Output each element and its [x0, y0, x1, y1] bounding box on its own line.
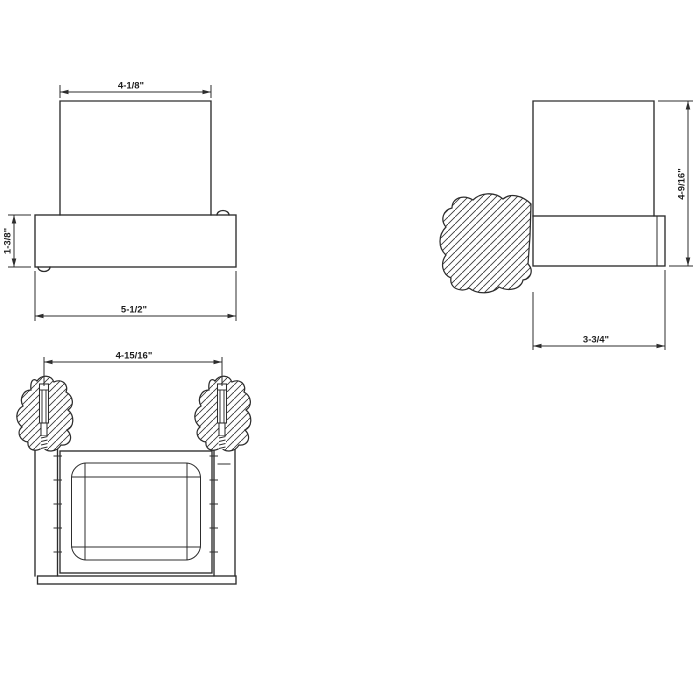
mount-base-front-outline	[35, 215, 236, 267]
anchor-screw-icon	[40, 384, 49, 449]
dim-arrow	[12, 259, 17, 268]
dim-label-base-height: 1-3/8"	[3, 228, 14, 254]
dim-label-top-width: 4-1/8"	[118, 81, 144, 92]
dim-arrow	[12, 215, 17, 224]
front-dimensions: 4-1/8" 1-3/8" 5-1/2"	[3, 81, 237, 322]
drawing-canvas: 4-1/8" 1-3/8" 5-1/2"	[0, 0, 700, 700]
dim-label-base-width: 5-1/2"	[121, 305, 147, 316]
technical-drawing: 4-1/8" 1-3/8" 5-1/2"	[0, 0, 700, 700]
set-screw-bump-top-icon	[217, 211, 229, 216]
holder-top-outline	[35, 447, 236, 584]
tumbler-side-outline	[533, 101, 654, 216]
ring-outer-edge	[60, 451, 212, 573]
mount-base-side-outline	[533, 216, 665, 266]
glass-rim-outline	[72, 463, 201, 560]
dim-arrow	[214, 360, 223, 365]
dim-arrow	[686, 101, 691, 110]
dim-label-overall-height: 4-9/16"	[677, 168, 688, 199]
dim-arrow	[44, 360, 53, 365]
side-view: 4-9/16" 3-3/4"	[440, 101, 693, 350]
dim-label-depth: 3-3/4"	[583, 335, 609, 346]
back-plate-edge	[38, 576, 237, 584]
top-view: 4-15/16"	[17, 351, 251, 585]
anchor-screw-icon	[218, 384, 227, 449]
dim-arrow	[533, 344, 542, 349]
dim-arrow	[203, 90, 212, 95]
dim-label-anchor-spacing: 4-15/16"	[116, 351, 153, 362]
hidden-edge-dashes	[54, 456, 218, 552]
front-view: 4-1/8" 1-3/8" 5-1/2"	[3, 81, 237, 322]
tumbler-front-outline	[60, 101, 211, 215]
dim-arrow	[657, 344, 666, 349]
dim-arrow	[35, 314, 44, 319]
dim-arrow	[228, 314, 237, 319]
wall-section-hatch	[440, 194, 531, 293]
dim-arrow	[686, 258, 691, 267]
dim-arrow	[60, 90, 69, 95]
top-dimensions: 4-15/16"	[44, 351, 222, 387]
side-dimensions: 4-9/16" 3-3/4"	[533, 101, 693, 350]
